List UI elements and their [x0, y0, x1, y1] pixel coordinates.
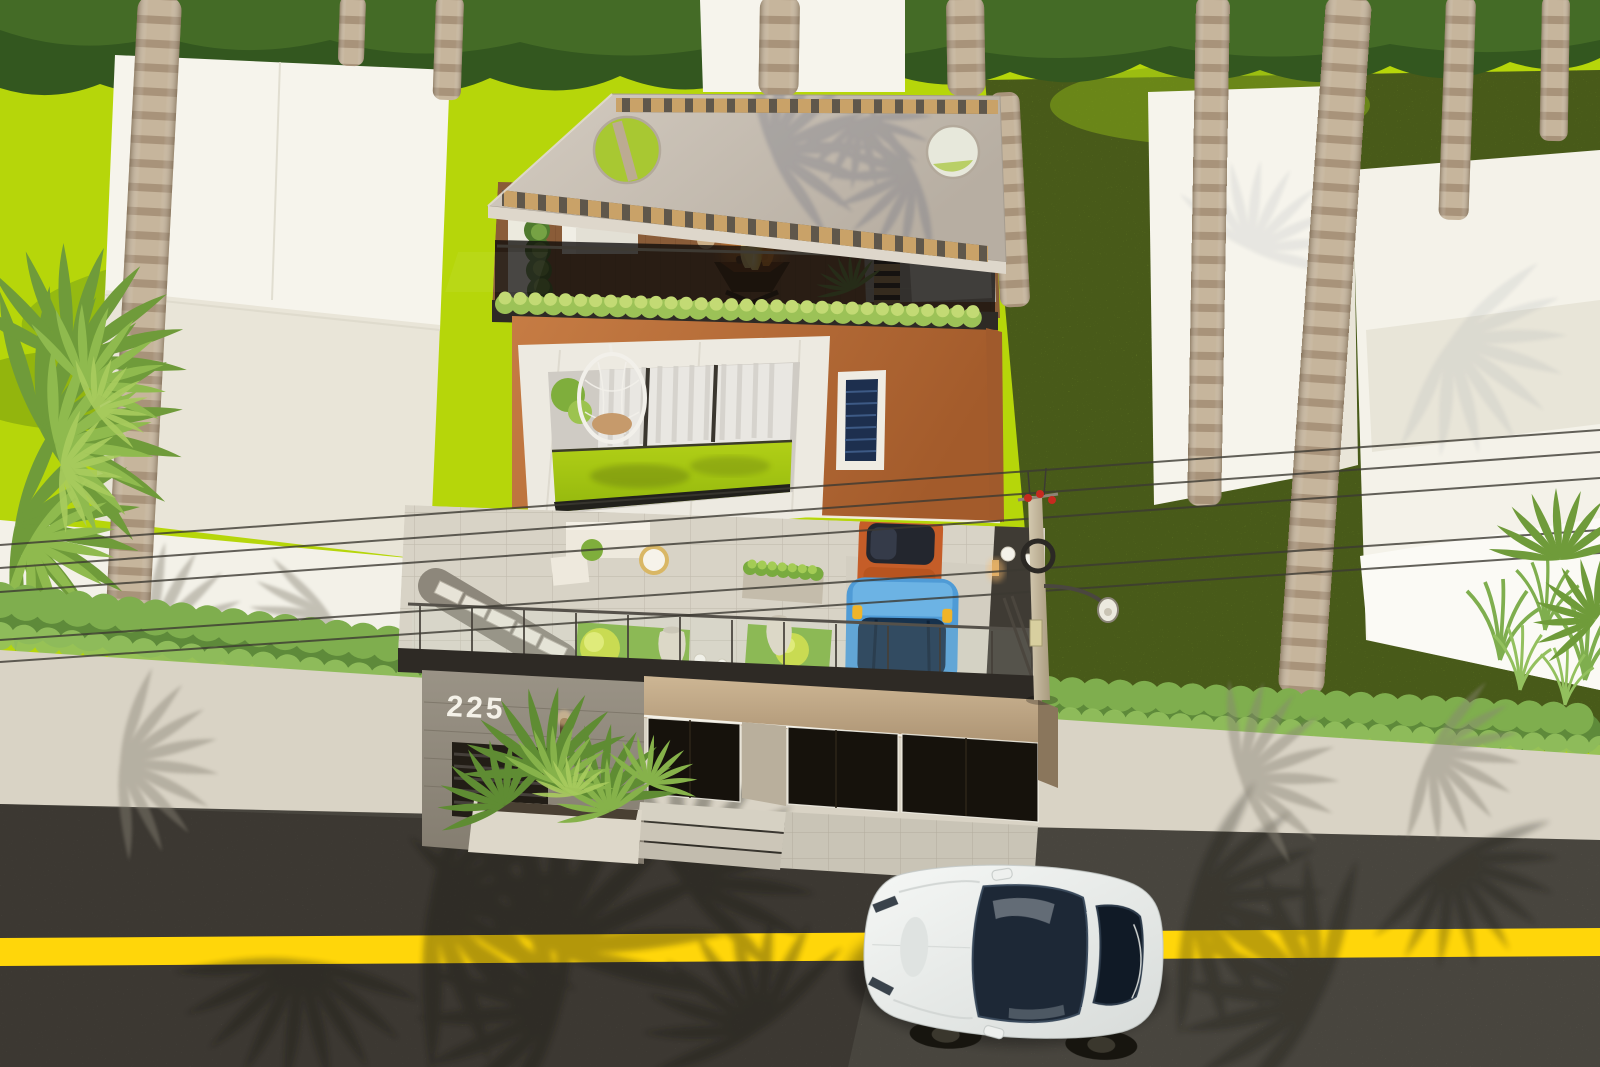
- house-number: 225: [446, 690, 507, 726]
- pergola-slats-back: [616, 98, 998, 114]
- garage-side-return: [1038, 700, 1058, 788]
- garage-level: 225: [413, 670, 1058, 884]
- car-rear-glass: [1091, 905, 1145, 1007]
- villa-render-scene: 225: [0, 0, 1600, 1067]
- palm-trunk: [338, 0, 366, 66]
- palm-trunk: [946, 0, 986, 96]
- sphere-lamp: [1001, 547, 1015, 561]
- garage-pier: [742, 722, 786, 806]
- render-canvas: 225: [0, 0, 1600, 1067]
- palm-trunk: [433, 0, 465, 100]
- insulator: [1048, 496, 1056, 504]
- entry-steps: [638, 802, 786, 870]
- palm-trunk: [758, 0, 800, 96]
- villa: 225: [398, 182, 1058, 884]
- insulator: [1024, 494, 1032, 502]
- palm-trunk: [1540, 0, 1571, 141]
- insulator: [1036, 490, 1044, 498]
- pole-sign-plate: [1030, 620, 1042, 646]
- louver-window: [836, 370, 886, 470]
- context-block-top: [700, 0, 905, 92]
